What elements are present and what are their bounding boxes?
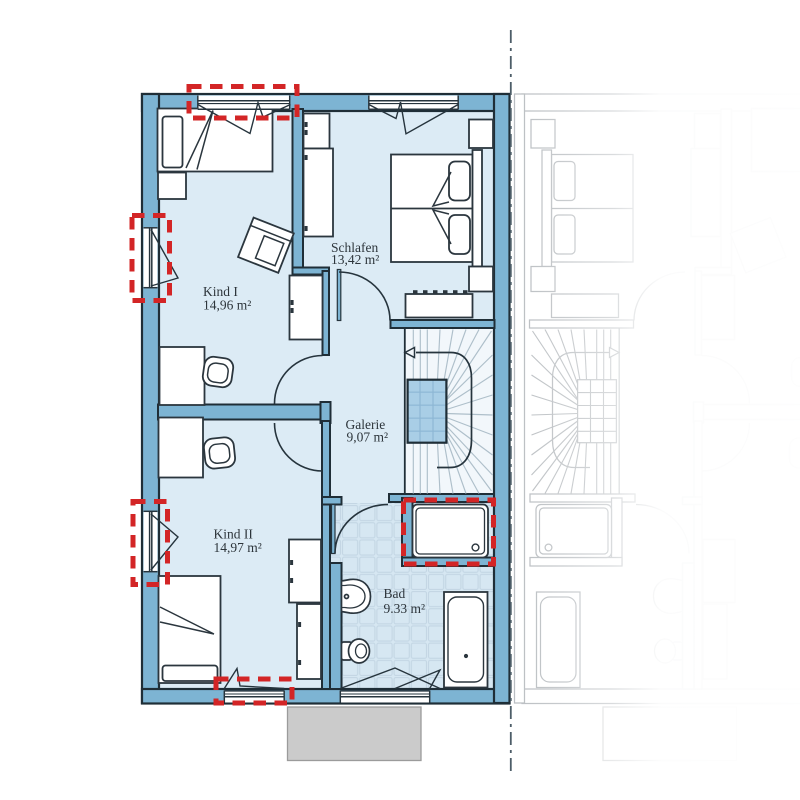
svg-text:14,96 m²: 14,96 m² <box>203 298 251 313</box>
svg-text:9.33 m²: 9.33 m² <box>384 601 426 616</box>
svg-text:9,07 m²: 9,07 m² <box>347 430 389 445</box>
svg-text:Bad: Bad <box>384 586 406 601</box>
svg-text:14,97 m²: 14,97 m² <box>214 540 262 555</box>
svg-text:13,42 m²: 13,42 m² <box>331 252 379 267</box>
